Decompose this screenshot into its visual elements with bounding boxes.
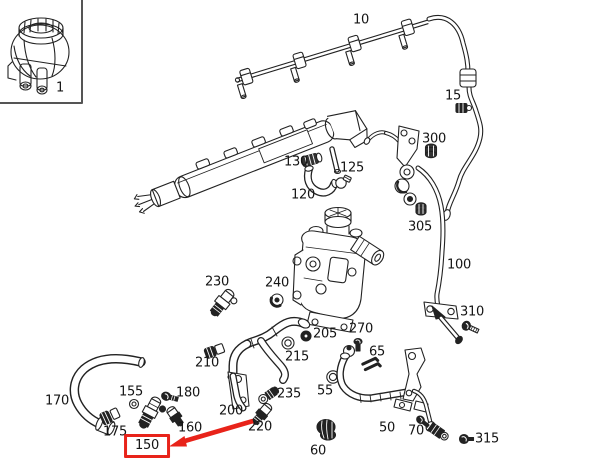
part-label-310[interactable]: 310 [460, 306, 484, 319]
part-label-100[interactable]: 100 [447, 259, 471, 272]
part-label-230[interactable]: 230 [205, 276, 229, 289]
part-label-200[interactable]: 200 [219, 405, 243, 418]
parts-diagram: 1101513012512030030510031023024020527065… [0, 0, 600, 462]
part-label-125[interactable]: 125 [340, 162, 364, 175]
part-label-235[interactable]: 235 [277, 388, 301, 401]
part-label-315[interactable]: 315 [475, 433, 499, 446]
part-label-10[interactable]: 10 [353, 14, 369, 27]
part-label-160[interactable]: 160 [178, 422, 202, 435]
part-label-210[interactable]: 210 [195, 357, 219, 370]
part-label-120[interactable]: 120 [291, 189, 315, 202]
part-label-215[interactable]: 215 [285, 351, 309, 364]
part-label-170[interactable]: 170 [45, 395, 69, 408]
part-label-70[interactable]: 70 [408, 425, 424, 438]
part-label-150[interactable]: 150 [124, 434, 170, 458]
part-label-180[interactable]: 180 [176, 387, 200, 400]
part-label-270[interactable]: 270 [349, 323, 373, 336]
part-label-300[interactable]: 300 [422, 133, 446, 146]
part-label-155[interactable]: 155 [119, 386, 143, 399]
part-label-55[interactable]: 55 [317, 385, 333, 398]
part-labels-layer: 1101513012512030030510031023024020527065… [0, 0, 600, 462]
part-label-240[interactable]: 240 [265, 277, 289, 290]
part-label-305[interactable]: 305 [408, 221, 432, 234]
part-label-65[interactable]: 65 [369, 346, 385, 359]
part-label-220[interactable]: 220 [248, 421, 272, 434]
part-label-205[interactable]: 205 [313, 328, 337, 341]
part-label-1[interactable]: 1 [56, 82, 64, 95]
part-label-60[interactable]: 60 [310, 445, 326, 458]
part-label-50[interactable]: 50 [379, 422, 395, 435]
part-label-15[interactable]: 15 [445, 90, 461, 103]
part-label-130[interactable]: 130 [284, 156, 308, 169]
